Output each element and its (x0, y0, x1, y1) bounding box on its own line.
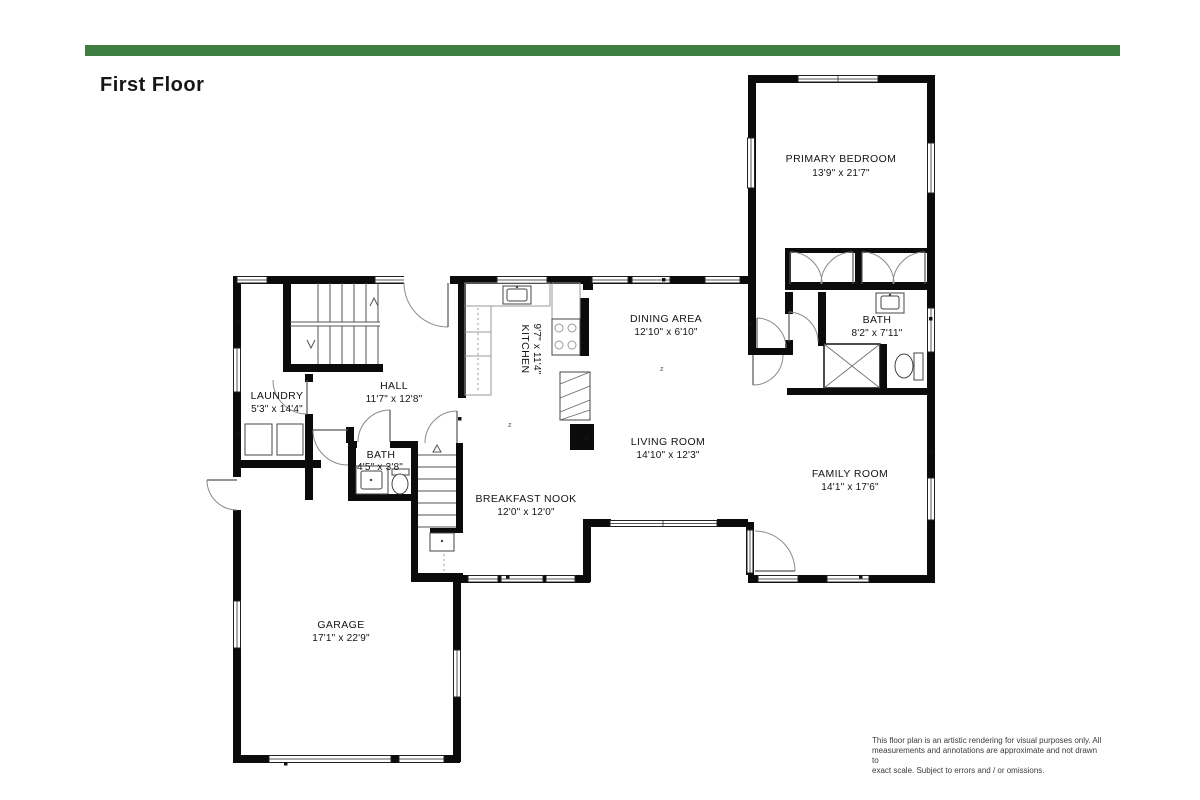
room-dims-laundry: 5'3" x 14'4" (251, 404, 303, 415)
room-label-family-room: FAMILY ROOM (812, 468, 888, 480)
primary-bath-fixtures (824, 293, 923, 388)
room-label-bath-small: BATH (367, 449, 396, 461)
room-label-primary-bedroom: PRIMARY BEDROOM (786, 153, 897, 165)
floor-plan-drawing: z z PRIMARY BEDROOM 13'9" x 21'7" BATH 8… (0, 0, 1200, 800)
svg-text:z: z (660, 366, 664, 373)
room-dims-living-room: 14'10" x 12'3" (636, 450, 699, 461)
room-dims-bath-small: 4'5" x 3'8" (357, 462, 403, 473)
room-dims-family-room: 14'1" x 17'6" (821, 482, 879, 493)
floor-plan-page: First Floor (0, 0, 1200, 800)
room-label-breakfast-nook: BREAKFAST NOOK (475, 493, 576, 505)
room-dims-primary-bedroom: 13'9" x 21'7" (812, 168, 870, 179)
disclaimer-line-3: exact scale. Subject to errors and / or … (872, 766, 1102, 776)
room-dims-kitchen: 9'7" x 11'4" (531, 324, 542, 375)
room-label-living-room: LIVING ROOM (631, 436, 705, 448)
laundry-fixtures (245, 424, 303, 455)
room-label-hall: HALL (380, 380, 408, 392)
main-staircase (290, 283, 380, 364)
room-dims-hall: 11'7" x 12'8" (366, 394, 423, 405)
room-label-kitchen: KITCHEN (519, 325, 531, 374)
room-label-laundry: LAUNDRY (251, 390, 304, 402)
room-label-bath-main: BATH (863, 314, 892, 326)
disclaimer-line-2: measurements and annotations are approxi… (872, 746, 1102, 766)
room-label-garage: GARAGE (317, 619, 364, 631)
mudroom-fixtures (430, 533, 454, 572)
svg-text:z: z (508, 422, 512, 429)
room-dims-breakfast-nook: 12'0" x 12'0" (497, 507, 555, 518)
disclaimer-text: This floor plan is an artistic rendering… (872, 736, 1102, 776)
room-dims-garage: 17'1" x 22'9" (312, 633, 370, 644)
room-dims-dining-area: 12'10" x 6'10" (634, 327, 697, 338)
basement-staircase (418, 445, 456, 527)
room-dims-bath-main: 8'2" x 7'11" (852, 328, 903, 339)
disclaimer-line-1: This floor plan is an artistic rendering… (872, 736, 1102, 746)
room-label-dining-area: DINING AREA (630, 313, 702, 325)
